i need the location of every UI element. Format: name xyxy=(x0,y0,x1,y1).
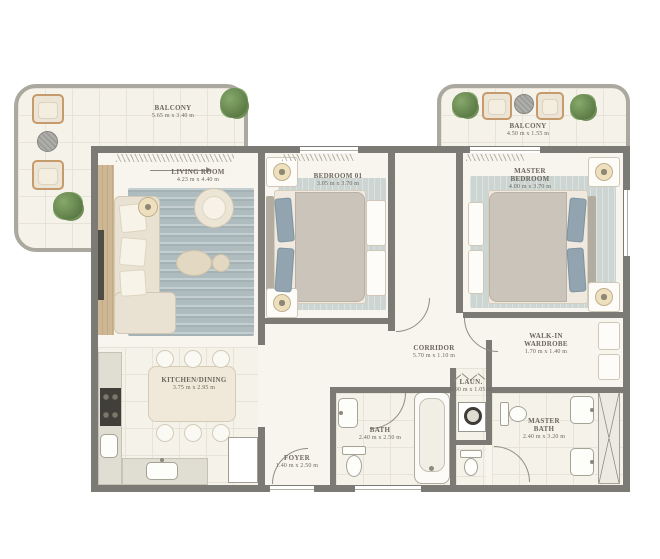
room-name: CORRIDOR xyxy=(413,344,454,353)
label-corridor: CORRIDOR 5.70 m x 1.10 m xyxy=(398,342,470,362)
faucet-icon xyxy=(339,411,343,415)
window xyxy=(624,190,630,256)
sliding-door-icon xyxy=(466,154,524,161)
wall xyxy=(456,153,463,313)
label-kitchen-dining: KITCHEN/DINING 3.75 m x 2.95 m xyxy=(148,374,240,394)
floor-plan: BALCONY 5.65 m x 3.40 m BALCONY 4.50 m x… xyxy=(0,0,660,559)
sliding-door-icon xyxy=(116,154,234,162)
room-name: KITCHEN/DINING xyxy=(161,376,226,385)
label-balcony-left: BALCONY 5.65 m x 3.40 m xyxy=(128,102,218,122)
kitchen-sink-icon xyxy=(146,462,178,480)
dining-chair-icon xyxy=(212,350,230,368)
balcony-round-table-icon xyxy=(37,131,58,152)
table-lamp-icon xyxy=(595,163,613,181)
plant-icon xyxy=(53,192,83,220)
room-dims: 0.90 m x 1.05 m xyxy=(450,387,492,394)
plant-icon xyxy=(570,94,596,120)
room-name: BALCONY xyxy=(509,122,546,131)
balcony-armchair-icon xyxy=(482,92,512,120)
label-living-room: LIVING ROOM 4.23 m x 4.40 m xyxy=(152,166,244,186)
headboard xyxy=(266,196,274,300)
wardrobe-shelf xyxy=(598,354,620,380)
toilet-icon xyxy=(460,450,482,458)
label-bedroom01: BEDROOM 01 3.05 m x 3.70 m xyxy=(296,170,380,190)
kitchen-sink-icon xyxy=(100,434,118,458)
duvet xyxy=(489,192,567,302)
side-table-icon xyxy=(212,254,230,272)
toilet-icon xyxy=(346,455,362,477)
room-dims: 2.40 m x 2.50 m xyxy=(359,435,401,442)
pillow xyxy=(274,247,294,292)
room-dims: 4.00 m x 3.70 m xyxy=(509,184,551,191)
table-lamp-icon xyxy=(273,163,291,181)
faucet-icon xyxy=(590,460,594,464)
wall xyxy=(258,427,265,485)
label-master-bath: MASTER BATH 2.40 m x 3.20 m xyxy=(518,414,570,444)
room-dims: 4.50 m x 1.55 m xyxy=(507,131,549,138)
window xyxy=(355,486,421,492)
room-name: BATH xyxy=(370,426,391,435)
room-name: FOYER xyxy=(284,454,310,463)
sofa-cushion xyxy=(119,237,147,267)
bench-icon xyxy=(366,250,386,296)
room-dims: 5.70 m x 1.10 m xyxy=(413,353,455,360)
window xyxy=(470,147,540,153)
window xyxy=(300,147,358,153)
room-dims: 4.23 m x 4.40 m xyxy=(177,177,219,184)
room-name: LIVING ROOM xyxy=(171,168,224,177)
room-name: MASTER BEDROOM xyxy=(502,167,558,185)
room-name: WALK-IN WARDROBE xyxy=(518,332,574,350)
wall xyxy=(388,153,395,331)
toilet-icon xyxy=(500,402,509,426)
plant-icon xyxy=(220,88,248,118)
wall xyxy=(330,387,336,485)
balcony-round-table-icon xyxy=(514,94,534,114)
room-name: BEDROOM 01 xyxy=(314,172,363,181)
faucet-icon xyxy=(160,458,164,462)
dining-chair-icon xyxy=(156,350,174,368)
dining-chair-icon xyxy=(184,350,202,368)
room-name: BALCONY xyxy=(154,104,191,113)
room-dims: 3.75 m x 2.95 m xyxy=(173,385,215,392)
entrance-opening xyxy=(270,486,314,492)
toilet-icon xyxy=(464,458,478,476)
room-dims: 5.65 m x 3.40 m xyxy=(152,113,194,120)
duvet xyxy=(295,192,365,302)
wall xyxy=(265,318,388,324)
label-foyer: FOYER 1.40 m x 2.50 m xyxy=(268,452,326,472)
wardrobe-shelf xyxy=(598,322,620,350)
pillow xyxy=(566,247,586,292)
wall xyxy=(492,387,623,393)
sofa-chaise xyxy=(114,292,176,334)
toilet-icon xyxy=(342,446,366,455)
bench-icon xyxy=(468,202,484,246)
tall-cabinet-icon xyxy=(228,437,258,483)
washer-drum-icon xyxy=(464,407,482,425)
dining-chair-icon xyxy=(184,424,202,442)
faucet-icon xyxy=(590,408,594,412)
wall xyxy=(258,153,265,345)
floor-lamp-icon xyxy=(138,197,158,217)
wall xyxy=(452,440,492,445)
stove-icon xyxy=(100,388,121,426)
shower-icon xyxy=(598,392,620,484)
table-lamp-icon xyxy=(273,294,291,312)
sofa-cushion xyxy=(119,269,147,297)
tv-icon xyxy=(98,230,104,300)
label-bath: BATH 2.40 m x 2.50 m xyxy=(350,424,410,444)
armchair-icon xyxy=(194,188,234,228)
drain-icon xyxy=(429,466,434,471)
dining-chair-icon xyxy=(156,424,174,442)
bench-icon xyxy=(366,200,386,246)
wall xyxy=(91,146,98,492)
room-dims: 1.70 m x 1.40 m xyxy=(525,349,567,356)
label-walkin-wardrobe: WALK-IN WARDROBE 1.70 m x 1.40 m xyxy=(518,328,574,360)
balcony-armchair-icon xyxy=(32,94,64,124)
room-name: LAUN. xyxy=(459,378,482,387)
sliding-door-icon xyxy=(282,154,354,161)
room-dims: 2.40 m x 3.20 m xyxy=(523,434,565,441)
bench-icon xyxy=(468,250,484,294)
wall xyxy=(91,146,630,153)
plant-icon xyxy=(452,92,478,118)
label-balcony-right: BALCONY 4.50 m x 1.55 m xyxy=(488,120,568,140)
label-master-bedroom: MASTER BEDROOM 4.00 m x 3.70 m xyxy=(502,164,558,194)
label-laundry: LAUN. 0.90 m x 1.05 m xyxy=(448,377,494,395)
room-name: MASTER BATH xyxy=(518,417,570,435)
balcony-armchair-icon xyxy=(536,92,564,120)
table-lamp-icon xyxy=(595,288,613,306)
bathtub-inner xyxy=(419,398,445,472)
coffee-table-icon xyxy=(176,250,212,276)
balcony-armchair-icon xyxy=(32,160,64,190)
room-dims: 1.40 m x 2.50 m xyxy=(276,463,318,470)
room-dims: 3.05 m x 3.70 m xyxy=(317,181,359,188)
